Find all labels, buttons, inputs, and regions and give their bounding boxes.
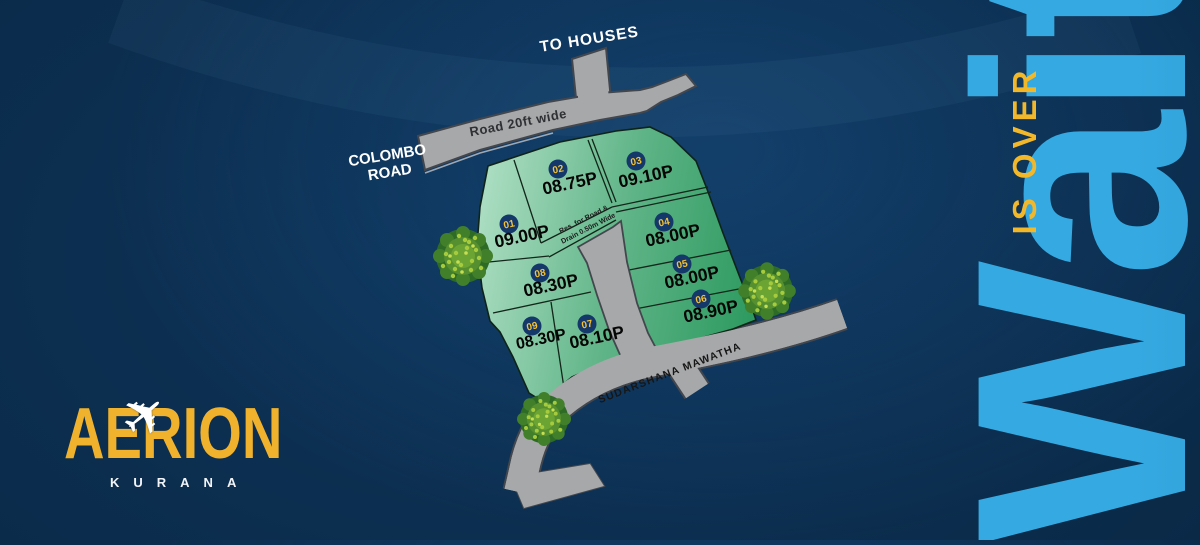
ad-canvas: Wait IS OVER Res. for Road (0, 0, 1200, 540)
tagline-phrase: IS OVER (1006, 66, 1043, 235)
tagline-word: Wait (913, 0, 1200, 540)
road-label-to-houses: TO HOUSES (539, 23, 640, 55)
brand-logo: AERION ✈ KURANA (64, 398, 304, 490)
road-label-colombo: COLOMBO ROAD (347, 141, 430, 187)
road-junction-patch (574, 50, 609, 106)
brand-location: KURANA (64, 475, 304, 490)
